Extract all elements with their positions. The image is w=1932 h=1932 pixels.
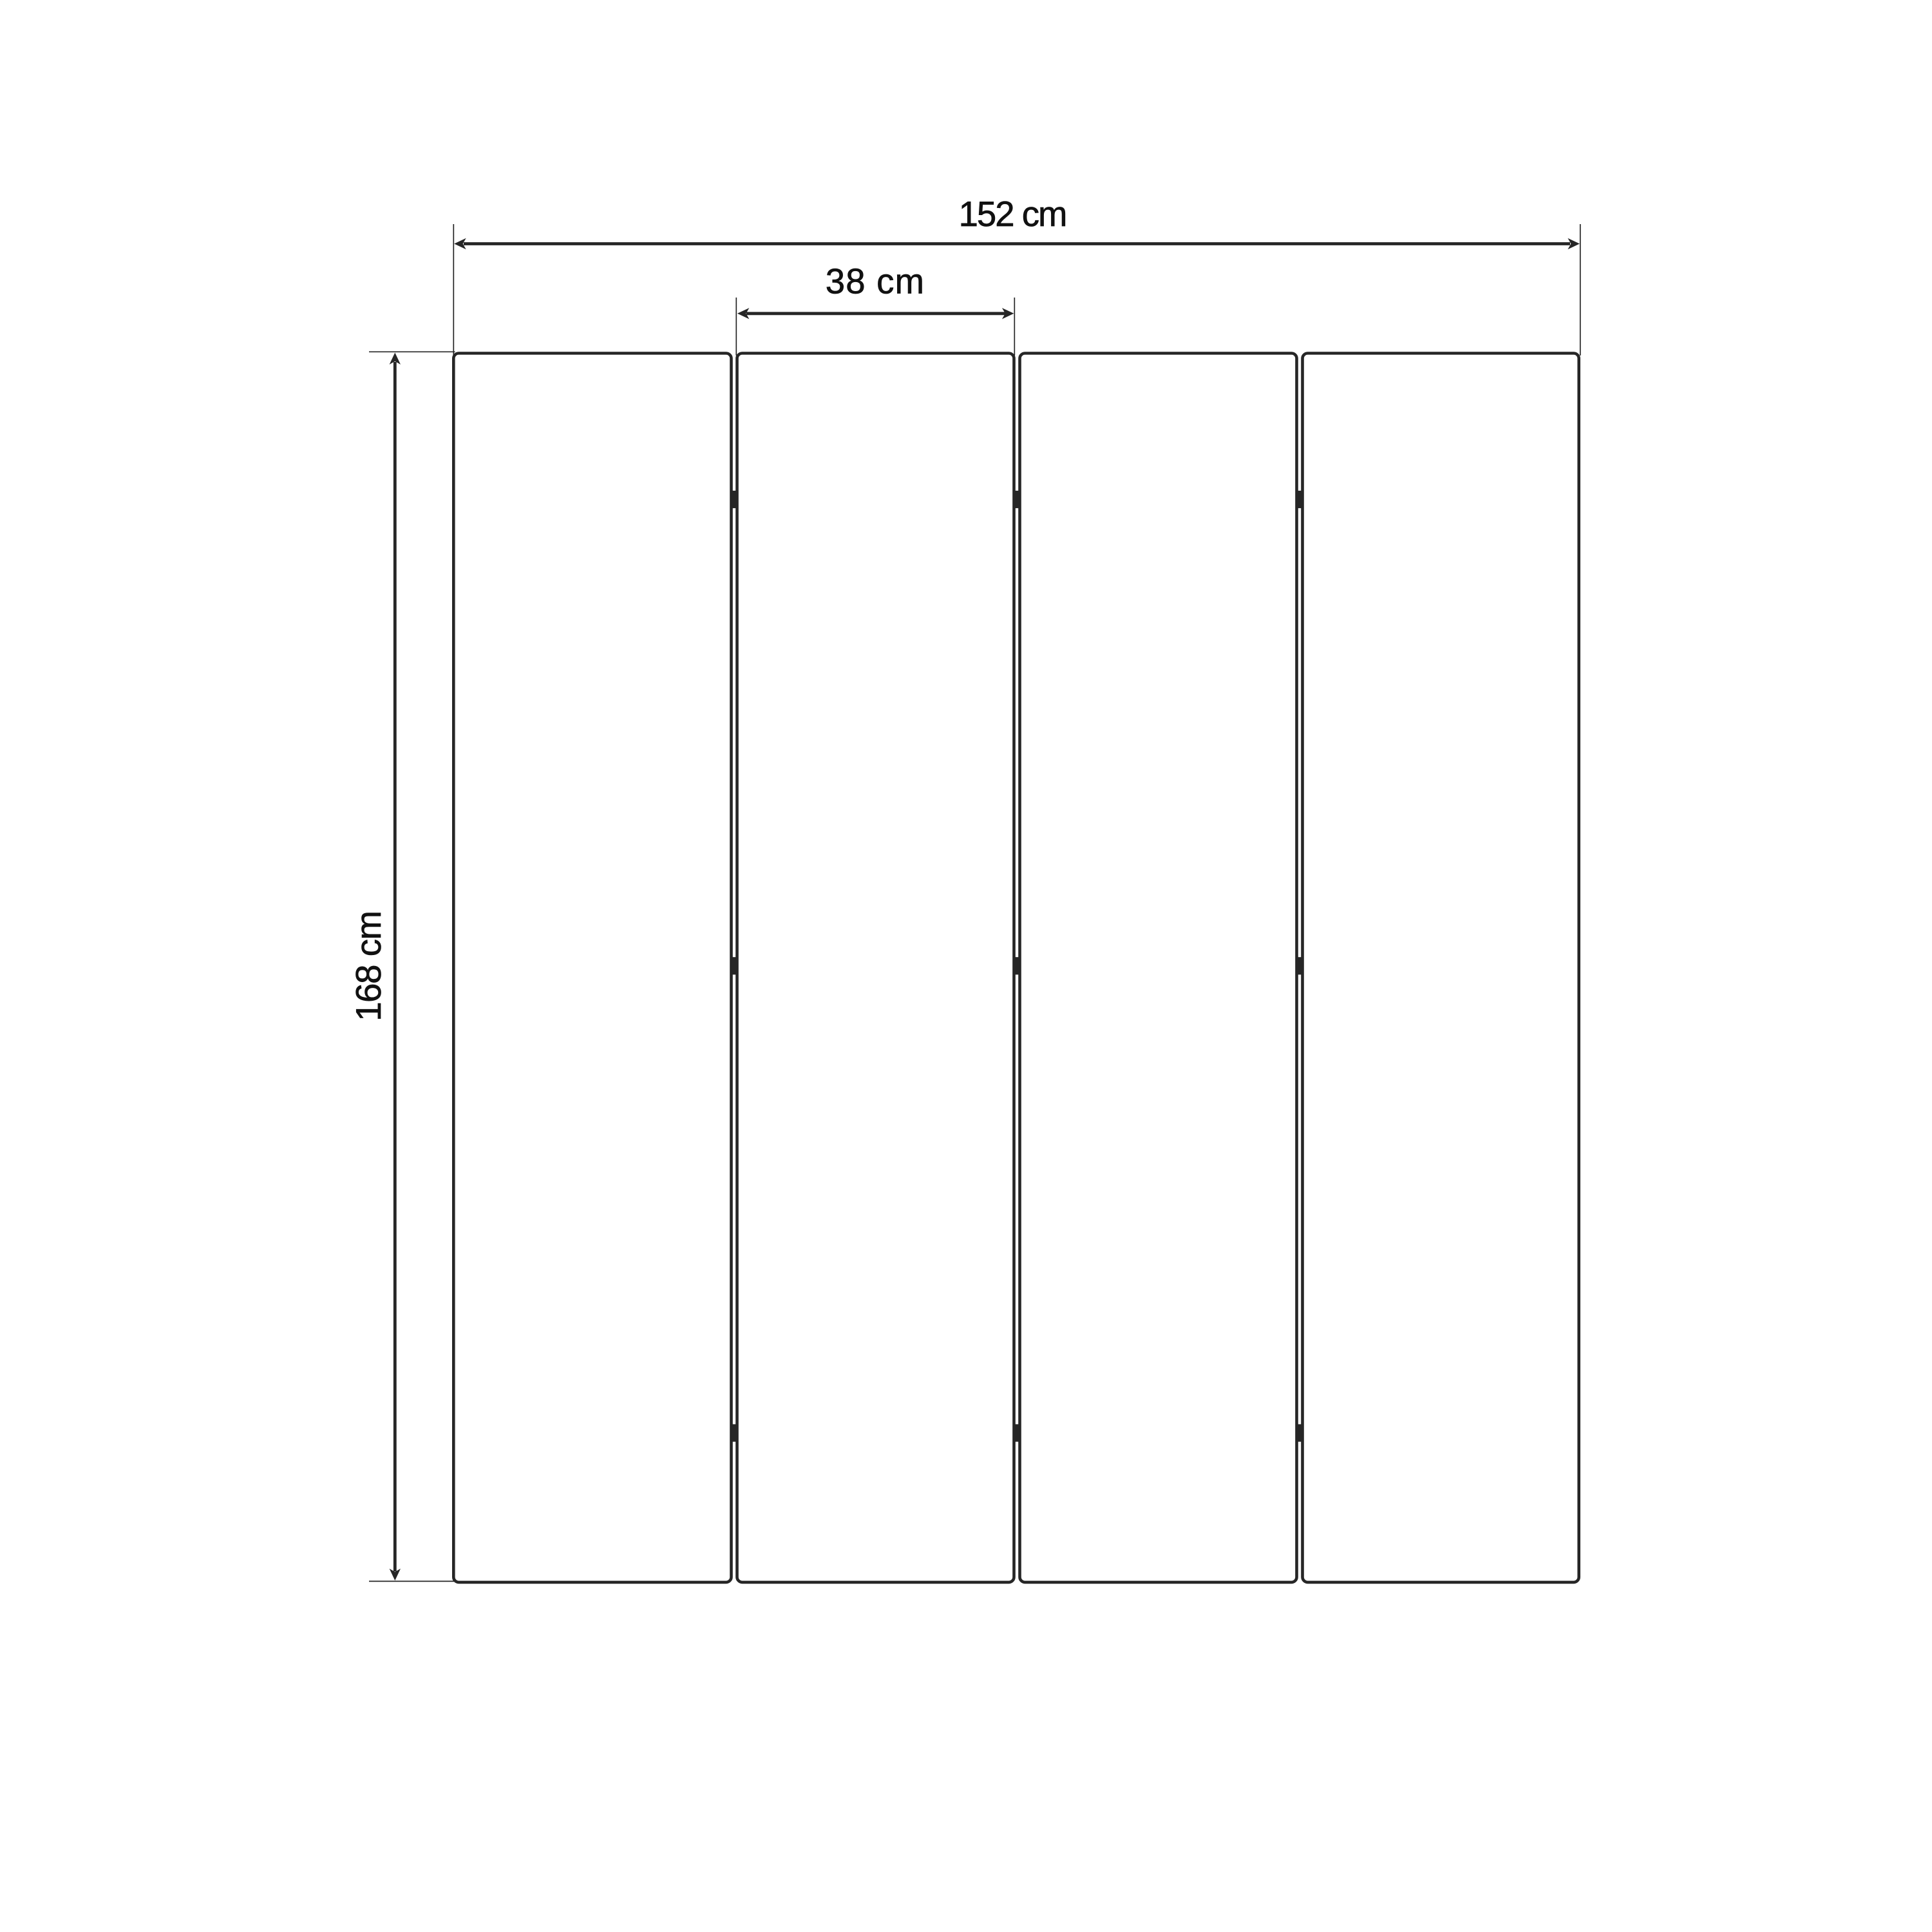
svg-text:152 cm: 152 cm xyxy=(959,194,1066,234)
svg-text:38 cm: 38 cm xyxy=(826,262,925,301)
svg-text:168 cm: 168 cm xyxy=(349,911,388,1021)
